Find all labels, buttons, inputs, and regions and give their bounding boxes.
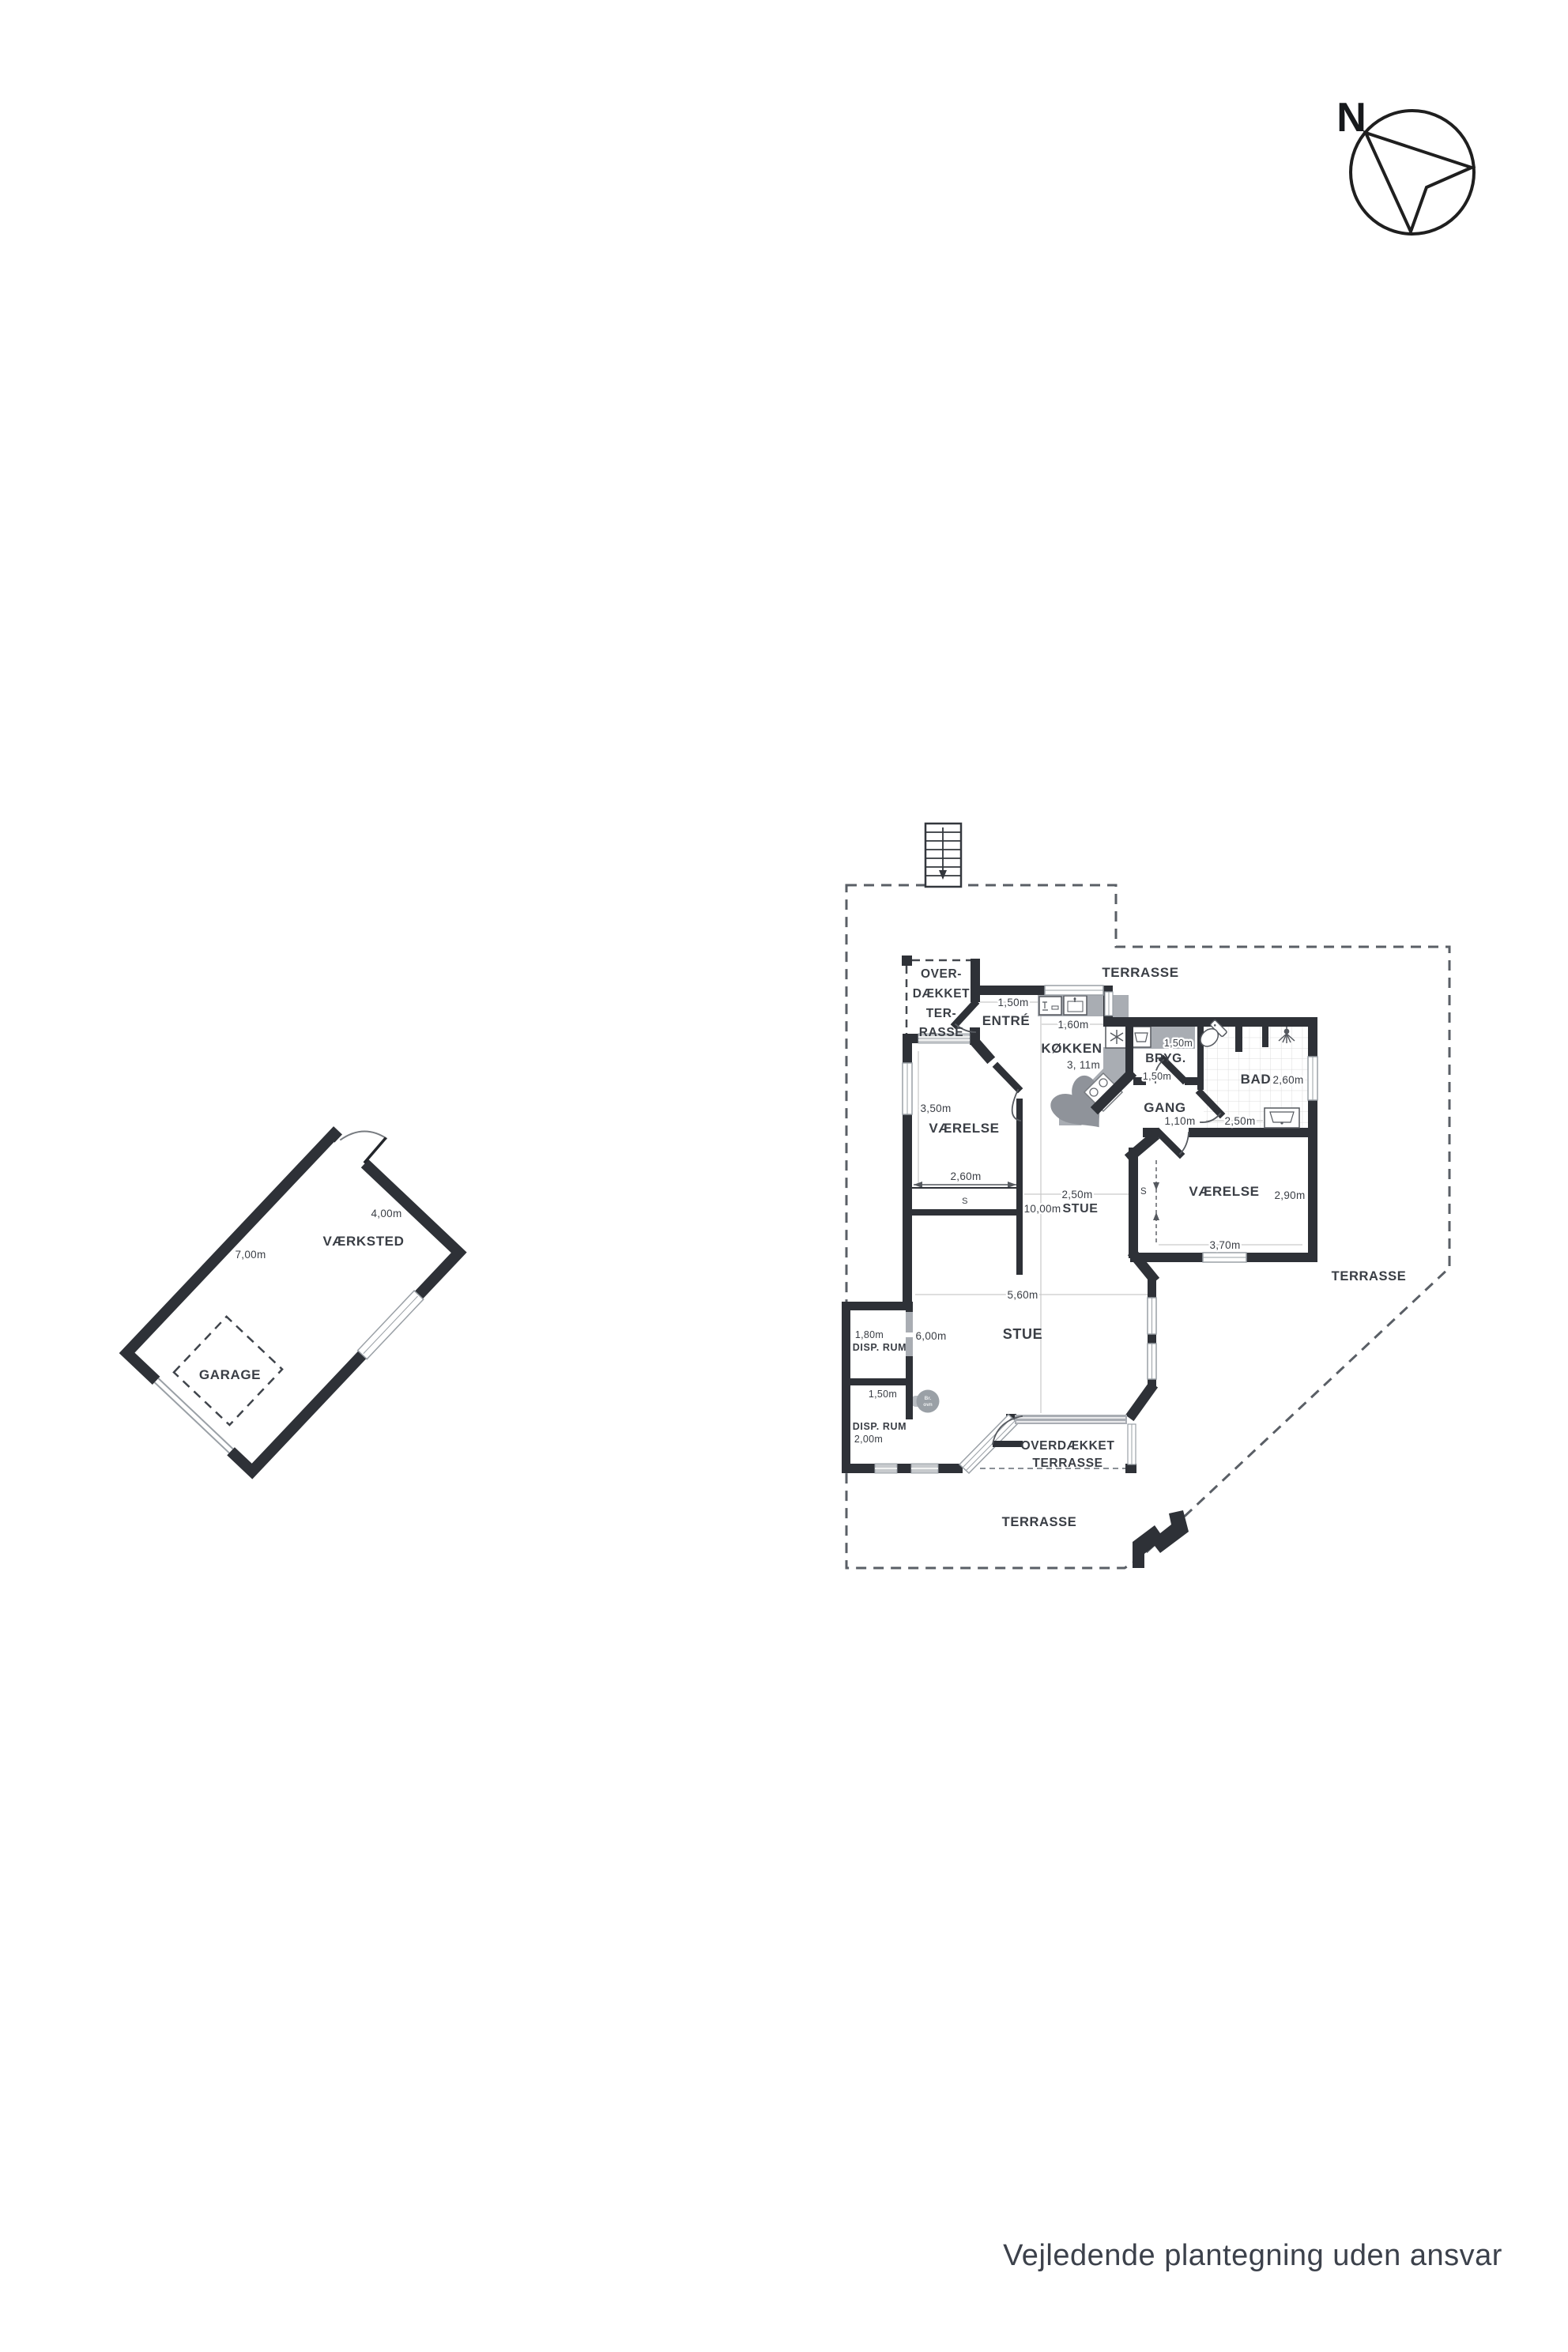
room-label-garage: GARAGE bbox=[199, 1367, 261, 1382]
dim-bad-width: 2,50m bbox=[1224, 1115, 1255, 1127]
closet-label-east: S bbox=[1140, 1187, 1147, 1197]
dim-disp2-height: 2,00m bbox=[854, 1434, 883, 1445]
window-step-east bbox=[1105, 992, 1113, 1016]
boundary-gate-icon bbox=[1133, 1510, 1189, 1568]
window-bay-2 bbox=[1148, 1344, 1156, 1379]
dim-disp1: 1,80m bbox=[855, 1329, 884, 1340]
kitchen-sink-icon bbox=[1064, 996, 1087, 1015]
dim-bryg-width: 1,50m bbox=[1164, 1038, 1193, 1049]
room-label-bryg: BRYG. bbox=[1145, 1052, 1186, 1065]
dim-gang: 1,10m bbox=[1164, 1115, 1195, 1127]
terrace-bottom-label: TERRASSE bbox=[1002, 1515, 1077, 1529]
washing-machine-icon bbox=[1132, 1027, 1151, 1047]
dim-outbuilding-short: 4,00m bbox=[371, 1208, 401, 1219]
terrace-top-label: TERRASSE bbox=[1102, 965, 1178, 980]
room-label-bad: BAD bbox=[1241, 1072, 1272, 1087]
disclaimer-text: Vejledende plantegning uden ansvar bbox=[1003, 2239, 1502, 2272]
covered-terrace-nw-line4: RASSE bbox=[919, 1026, 963, 1039]
dim-vaerelse-west-height: 3,50m bbox=[920, 1102, 951, 1114]
dimension-arrows bbox=[914, 1182, 1016, 1188]
glass-wall-south bbox=[1015, 1415, 1127, 1424]
window-bath-east bbox=[1308, 1057, 1317, 1100]
floor-plan-drawing: Br. ovn bbox=[0, 0, 1568, 2352]
dim-kitchen-counter: 1,60m bbox=[1057, 1019, 1088, 1031]
covered-terrace-south-line2: TERRASSE bbox=[1032, 1457, 1102, 1470]
closets bbox=[910, 1160, 1159, 1242]
covered-terrace-nw-line2: DÆKKET bbox=[913, 987, 971, 1001]
window-bedroom-west bbox=[903, 1063, 912, 1114]
window-bedroom-east-south bbox=[1203, 1253, 1246, 1262]
window-south-1 bbox=[875, 1464, 897, 1473]
compass-north-label: N bbox=[1336, 95, 1366, 141]
room-label-entre: ENTRÉ bbox=[982, 1013, 1031, 1028]
window-bay-1 bbox=[1148, 1298, 1156, 1334]
room-label-stue-upper: STUE bbox=[1062, 1202, 1098, 1216]
room-label-stue: STUE bbox=[1003, 1326, 1042, 1342]
dim-entre: 1,50m bbox=[997, 997, 1028, 1008]
window-kitchen-north bbox=[1045, 986, 1103, 995]
room-label-koekken: KØKKEN bbox=[1041, 1041, 1102, 1056]
dim-disp2-width: 1,50m bbox=[869, 1389, 897, 1400]
wood-stove-icon: Br. ovn bbox=[910, 1390, 940, 1413]
covered-terrace-south-line1: OVERDÆKKET bbox=[1021, 1439, 1115, 1453]
room-label-disp2: DISP. RUM bbox=[853, 1421, 906, 1432]
freezer-icon bbox=[1106, 1026, 1128, 1048]
covered-terrace-nw-line1: OVER- bbox=[921, 967, 962, 981]
dim-outbuilding-long: 7,00m bbox=[235, 1249, 266, 1261]
room-label-vaerelse-east: VÆRELSE bbox=[1189, 1184, 1259, 1199]
dim-bryg-height: 1,50m bbox=[1143, 1071, 1171, 1082]
dim-stue-lower: 5,60m bbox=[1007, 1289, 1038, 1301]
dim-vaerelse-east-height: 2,90m bbox=[1274, 1189, 1305, 1201]
outbuilding: 4,00m VÆRKSTED 7,00m GARAGE bbox=[122, 1110, 486, 1481]
room-label-disp1: DISP. RUM bbox=[853, 1342, 906, 1353]
window-south-2 bbox=[911, 1464, 938, 1473]
room-label-vaerelse-west: VÆRELSE bbox=[929, 1121, 999, 1136]
wood-stove-label-1: Br. bbox=[925, 1396, 932, 1401]
dim-stue-upper: 2,50m bbox=[1061, 1189, 1092, 1200]
covered-terrace-nw-line3: TER- bbox=[926, 1007, 957, 1020]
dishwasher-icon bbox=[1039, 997, 1061, 1015]
outbuilding-door-leaf bbox=[363, 1138, 386, 1163]
dim-kitchen-depth: 3, 11m bbox=[1067, 1059, 1100, 1071]
bath-sink-icon bbox=[1265, 1108, 1299, 1128]
dim-stue-total: 10,00m bbox=[1024, 1203, 1061, 1215]
door-bedroom-east bbox=[1159, 1133, 1189, 1154]
closet-label-west: S bbox=[962, 1197, 968, 1206]
stairs-icon bbox=[925, 824, 961, 887]
compass-icon: N bbox=[1336, 95, 1474, 234]
room-label-vaerksted: VÆRKSTED bbox=[322, 1234, 404, 1249]
dim-vaerelse-east-width: 3,70m bbox=[1209, 1239, 1240, 1251]
dim-bad-height: 2,60m bbox=[1272, 1074, 1303, 1086]
dim-stue-left: 6,00m bbox=[915, 1330, 946, 1342]
wood-stove-label-2: ovn bbox=[923, 1402, 933, 1408]
dim-vaerelse-west-width: 2,60m bbox=[950, 1170, 981, 1182]
floor-plan-page: Br. ovn bbox=[0, 0, 1568, 2352]
terrace-right-label: TERRASSE bbox=[1332, 1269, 1407, 1283]
room-label-gang: GANG bbox=[1144, 1100, 1185, 1115]
